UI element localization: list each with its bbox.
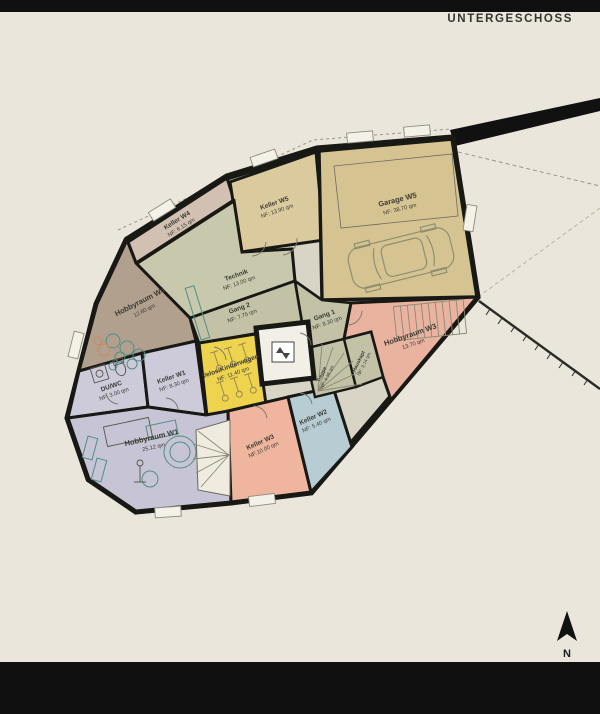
floorplan-page: UNTERGESCHOSS <box>0 0 600 714</box>
retaining-wall <box>479 301 600 389</box>
svg-text:N: N <box>563 648 571 660</box>
bottom-black-bar <box>0 662 600 714</box>
north-arrow-icon: N <box>557 611 577 660</box>
site-dashed-line-2 <box>478 208 600 297</box>
elevator <box>256 322 314 384</box>
floor-plan: Keller W4 NF: 6.15 qm Keller W5 NF: 13.9… <box>0 0 600 714</box>
site-wedge <box>450 98 600 146</box>
stairs-winder-bottom <box>193 420 230 496</box>
site-dashed-line <box>458 152 600 186</box>
